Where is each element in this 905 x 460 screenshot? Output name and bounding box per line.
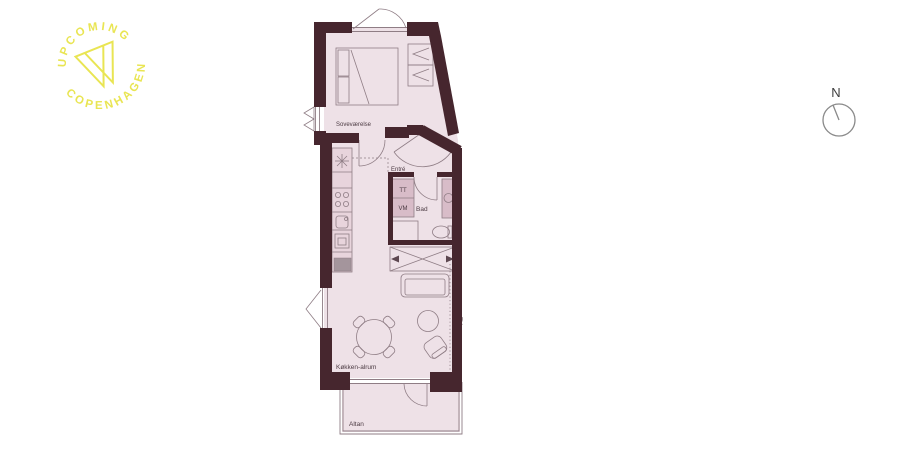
logo-arc-bottom-text: COPENHAGEN [61,56,160,126]
washer-label: VM [399,206,408,212]
kitchen-living-label: Køkken-alrum [336,364,376,371]
dryer-label: TT [399,188,407,194]
wall-entry-top [407,125,423,135]
wall-bottom-left [320,372,350,390]
wall-left-upper [314,22,326,107]
bedroom-window-swing [304,107,314,119]
bath-wall-left [388,172,393,245]
floorplan-image: UPCOMING COPENHAGEN N Altan Soveværel [0,0,905,460]
top-window-swing [353,9,379,29]
toilet-icon [433,226,450,238]
bedroom-window-swing [304,119,314,131]
top-window-swing-arc [379,9,406,28]
wall-divider-right [385,127,409,138]
logo-w-monogram-icon [75,42,126,92]
wall-right [452,148,462,378]
compass-needle-icon [833,105,839,120]
bath-wall-top-right [437,172,455,177]
bath-wall-bottom [388,240,455,245]
north-compass: N [823,85,855,136]
living-window-swing [306,290,321,328]
brand-logo: UPCOMING COPENHAGEN [41,7,160,126]
north-label: N [831,85,840,100]
bedroom-label: Soveværelse [336,122,372,128]
wall-bottom-right [430,372,462,392]
balcony-label: Altan [349,421,364,428]
extractor-icon [335,154,349,168]
wall-left-lower [320,328,332,378]
wall-top-right [407,22,441,36]
floorplan-page: UPCOMING COPENHAGEN N Altan Soveværel [0,0,905,460]
wall-left-mid [320,138,332,288]
bathroom-label: Bad [416,206,428,213]
logo-arc-top-text: UPCOMING [46,8,135,71]
appliance-block [334,258,351,271]
